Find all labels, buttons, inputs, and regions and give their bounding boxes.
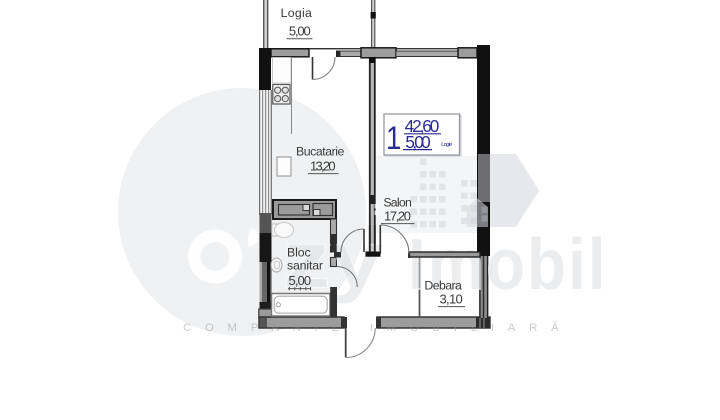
svg-text:Logie: Logie — [441, 142, 452, 148]
svg-text:sanitar: sanitar — [287, 259, 323, 273]
svg-text:5,00: 5,00 — [405, 132, 430, 152]
svg-text:COMPANIE IMOBILIARĂ: COMPANIE IMOBILIARĂ — [183, 321, 572, 334]
svg-text:17,20: 17,20 — [384, 209, 411, 224]
svg-text:Logia: Logia — [281, 6, 312, 20]
svg-text:Imobil: Imobil — [408, 225, 608, 305]
svg-text:Bucatarie: Bucatarie — [296, 145, 344, 159]
svg-text:3,10: 3,10 — [439, 292, 462, 307]
svg-text:5,00: 5,00 — [289, 24, 311, 39]
svg-text:Salon: Salon — [383, 196, 412, 210]
svg-text:13,20: 13,20 — [310, 159, 336, 174]
svg-text:1: 1 — [386, 121, 401, 157]
svg-text:5,00: 5,00 — [289, 273, 312, 288]
svg-text:Bloc: Bloc — [287, 246, 311, 260]
svg-text:Debara: Debara — [424, 279, 462, 293]
